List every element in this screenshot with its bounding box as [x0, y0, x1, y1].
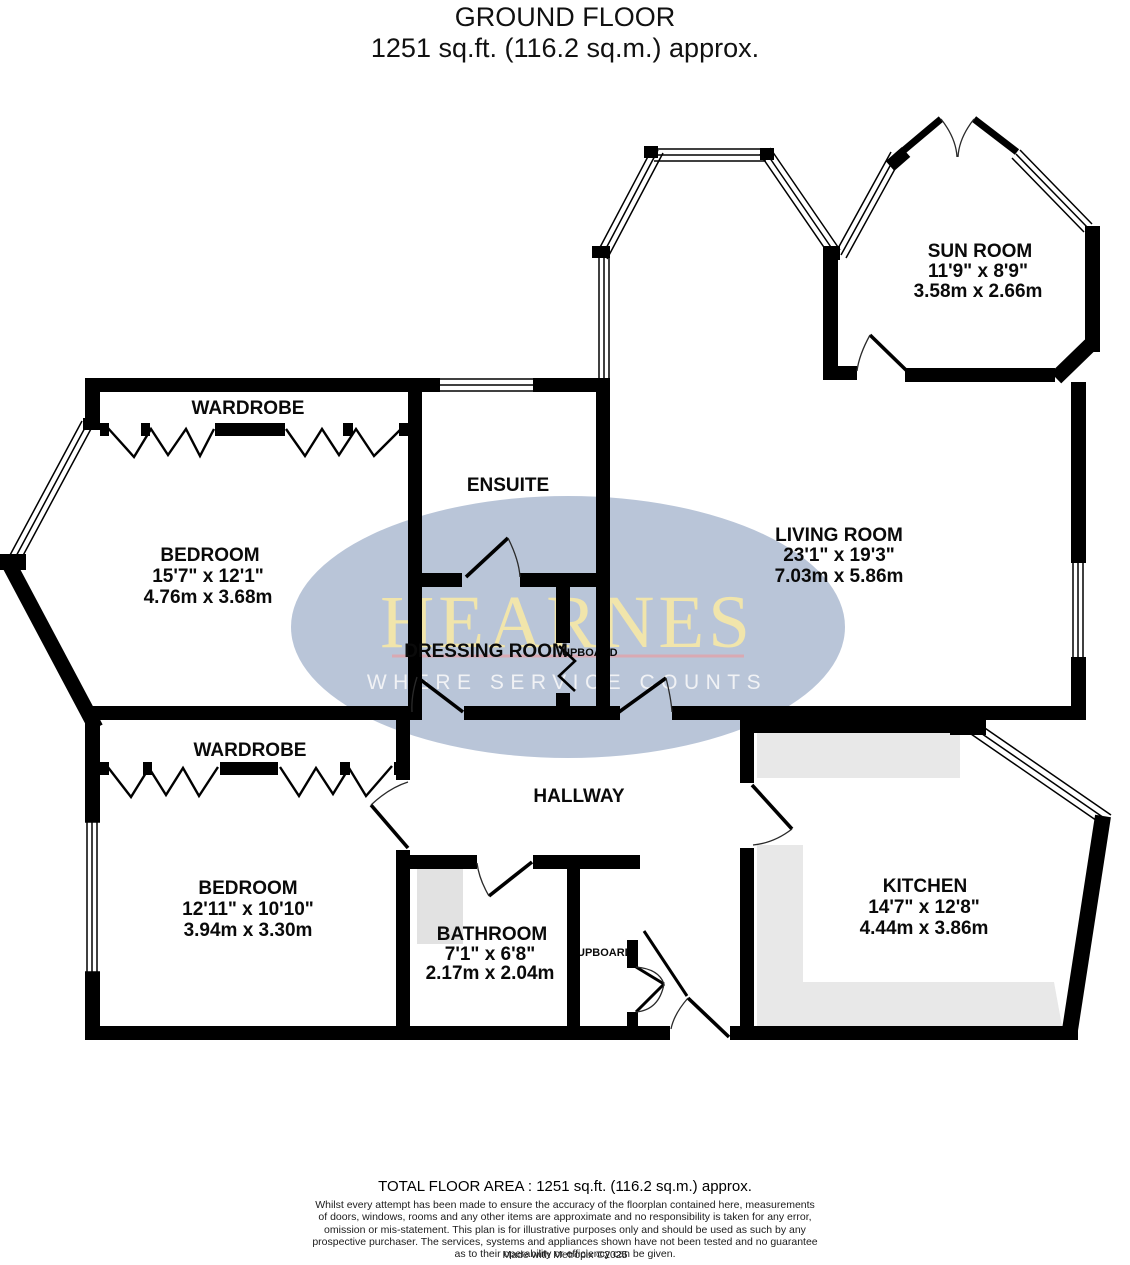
- bedroom2-window: [85, 822, 100, 972]
- disclaimer-line: omission or mis-statement. This plan is …: [0, 1224, 1130, 1236]
- label-sunroom-name: SUN ROOM: [928, 241, 1033, 262]
- total-floor-area: TOTAL FLOOR AREA : 1251 sq.ft. (116.2 sq…: [0, 1178, 1130, 1195]
- kitchen-window: [971, 724, 1111, 825]
- label-wardrobe2: WARDROBE: [194, 740, 307, 761]
- label-bedroom2-name: BEDROOM: [198, 878, 297, 899]
- disclaimer-line: of doors, windows, rooms and any other i…: [0, 1211, 1130, 1223]
- label-bedroom1-metric: 4.76m x 3.68m: [144, 587, 273, 608]
- label-wardrobe1: WARDROBE: [192, 398, 305, 419]
- living-bay-windows: [597, 147, 840, 378]
- label-cupboard-hall: UPBOARD: [577, 947, 633, 959]
- label-bathroom-metric: 2.17m x 2.04m: [426, 963, 555, 984]
- label-bedroom1-name: BEDROOM: [160, 545, 259, 566]
- label-hallway: HALLWAY: [533, 786, 624, 807]
- label-bathroom-name: BATHROOM: [437, 924, 547, 945]
- label-kitchen-imperial: 14'7" x 12'8": [868, 897, 980, 918]
- label-bedroom2-imperial: 12'11" x 10'10": [182, 899, 314, 920]
- disclaimer-line: Whilst every attempt has been made to en…: [0, 1199, 1130, 1211]
- label-bedroom2-metric: 3.94m x 3.30m: [184, 920, 313, 941]
- disclaimer-line: prospective purchaser. The services, sys…: [0, 1236, 1130, 1248]
- label-sunroom-metric: 3.58m x 2.66m: [914, 281, 1043, 302]
- label-sunroom-imperial: 11'9" x 8'9": [928, 261, 1028, 282]
- label-kitchen-metric: 4.44m x 3.86m: [860, 918, 989, 939]
- ensuite-window: [437, 379, 533, 391]
- bedroom1-bay-window: [9, 421, 92, 563]
- floorplan-page: GROUND FLOOR 1251 sq.ft. (116.2 sq.m.) a…: [0, 0, 1130, 1265]
- label-living-metric: 7.03m x 5.86m: [775, 566, 904, 587]
- label-ensuite: ENSUITE: [467, 475, 549, 496]
- living-room-window: [1073, 563, 1083, 657]
- label-kitchen-name: KITCHEN: [883, 876, 967, 897]
- label-bedroom1-imperial: 15'7" x 12'1": [152, 566, 264, 587]
- label-living-imperial: 23'1" x 19'3": [783, 545, 895, 566]
- label-dressing-room: DRESSING ROOM: [404, 641, 568, 662]
- label-bathroom-imperial: 7'1" x 6'8": [445, 944, 535, 965]
- floorplan-drawing: HEARNES WHERE SERVICE COUNTS UPBOARD UPB…: [0, 0, 1130, 1265]
- label-living-name: LIVING ROOM: [775, 525, 903, 546]
- metropix-credit: Made with Metropix ©2025: [0, 1249, 1130, 1261]
